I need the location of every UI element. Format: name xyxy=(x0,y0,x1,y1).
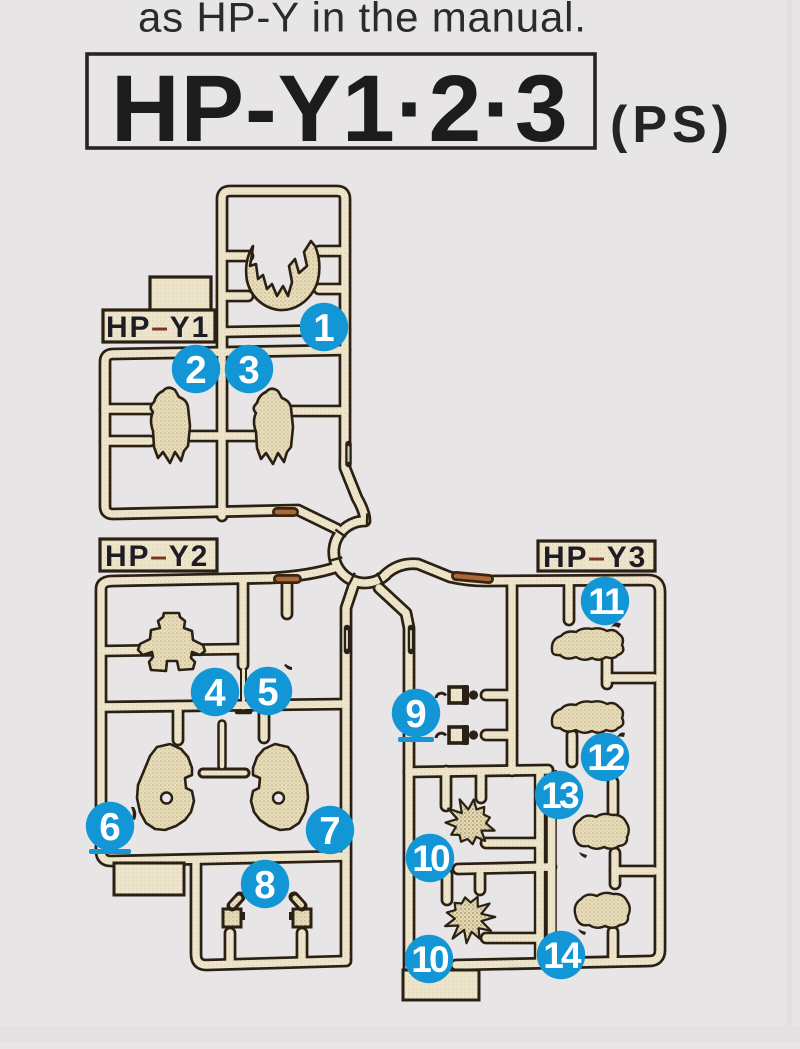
svg-text:(PS): (PS) xyxy=(610,96,734,154)
svg-text:4: 4 xyxy=(204,672,226,715)
svg-text:2: 2 xyxy=(185,349,206,392)
svg-text:9: 9 xyxy=(405,693,426,736)
svg-text:6: 6 xyxy=(99,806,120,849)
svg-text:13: 13 xyxy=(541,775,579,816)
svg-text:HP-Y1·2·3: HP-Y1·2·3 xyxy=(111,56,569,162)
svg-text:7: 7 xyxy=(319,810,340,853)
svg-text:1: 1 xyxy=(313,307,334,350)
svg-text:8: 8 xyxy=(254,864,275,907)
svg-text:5: 5 xyxy=(257,671,278,714)
svg-text:11: 11 xyxy=(588,581,624,622)
svg-text:HP–Y3: HP–Y3 xyxy=(543,541,647,574)
svg-text:10: 10 xyxy=(411,939,449,980)
svg-text:HP–Y1: HP–Y1 xyxy=(106,311,210,344)
svg-text:3: 3 xyxy=(238,349,259,392)
svg-text:12: 12 xyxy=(587,737,625,778)
svg-text:HP–Y2: HP–Y2 xyxy=(105,540,209,573)
svg-text:10: 10 xyxy=(412,838,450,879)
svg-text:14: 14 xyxy=(543,935,582,976)
svg-text:as HP-Y in the manual.: as HP-Y in the manual. xyxy=(138,0,587,41)
